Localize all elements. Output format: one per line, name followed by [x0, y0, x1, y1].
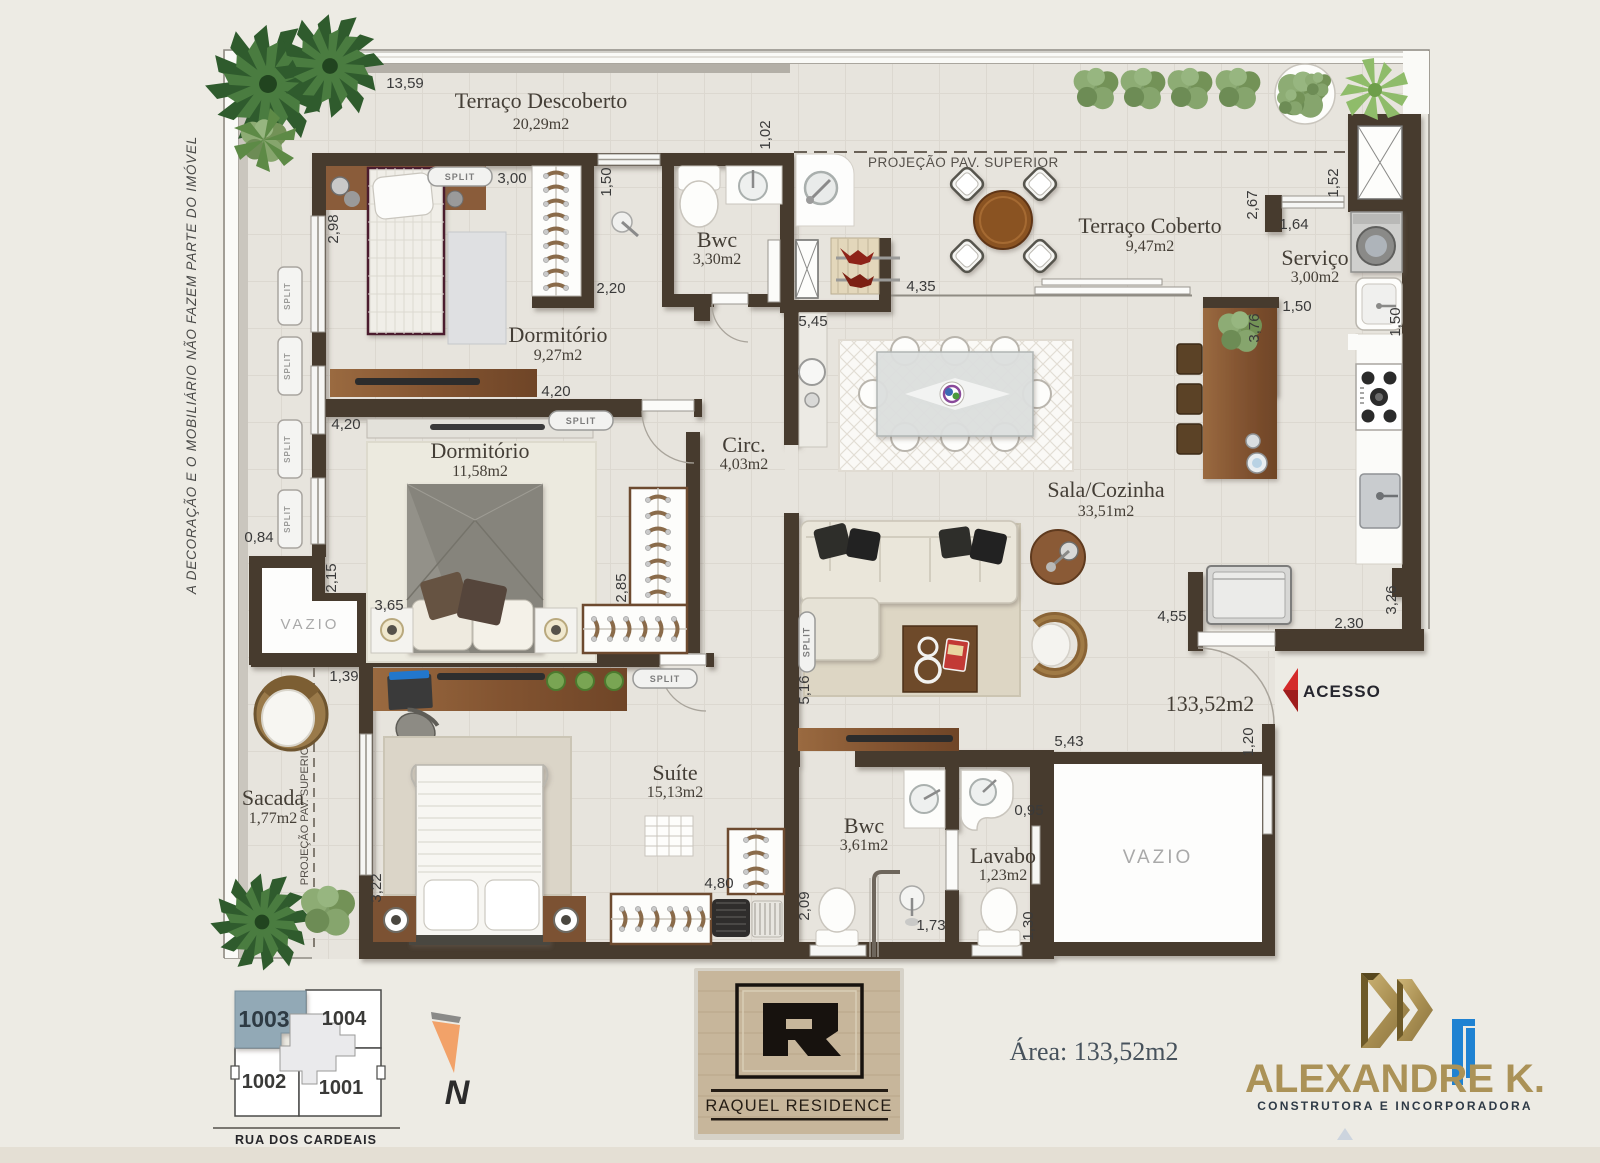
- svg-text:3,61m2: 3,61m2: [840, 837, 888, 854]
- svg-text:2,09: 2,09: [796, 891, 813, 920]
- svg-text:133,52m2: 133,52m2: [1166, 691, 1255, 716]
- svg-text:15,13m2: 15,13m2: [647, 784, 703, 801]
- svg-text:9,27m2: 9,27m2: [534, 347, 582, 364]
- svg-text:Bwc: Bwc: [697, 227, 738, 252]
- svg-text:1,50: 1,50: [1282, 298, 1311, 315]
- svg-text:PROJEÇÃO PAV. SUPERIOR: PROJEÇÃO PAV. SUPERIOR: [298, 739, 311, 886]
- svg-text:Lavabo: Lavabo: [970, 843, 1036, 868]
- svg-text:3,65: 3,65: [374, 597, 403, 614]
- svg-text:1,52: 1,52: [1325, 168, 1342, 197]
- svg-text:0,84: 0,84: [244, 529, 273, 546]
- svg-text:2,30: 2,30: [1334, 615, 1363, 632]
- svg-text:1,50: 1,50: [1387, 307, 1404, 336]
- svg-text:3,30m2: 3,30m2: [693, 251, 741, 268]
- svg-text:Suíte: Suíte: [652, 760, 697, 785]
- svg-text:1,73: 1,73: [916, 917, 945, 934]
- svg-text:1003: 1003: [238, 1006, 289, 1032]
- svg-text:ACESSO: ACESSO: [1303, 682, 1381, 701]
- svg-text:Sacada: Sacada: [242, 785, 305, 810]
- svg-text:5,16: 5,16: [796, 675, 813, 704]
- svg-text:Área: 133,52m2: Área: 133,52m2: [1010, 1037, 1179, 1066]
- svg-text:3,26: 3,26: [1383, 585, 1400, 614]
- svg-text:1,64: 1,64: [1279, 216, 1308, 233]
- svg-text:SPLIT: SPLIT: [283, 435, 292, 463]
- svg-text:2,67: 2,67: [1244, 190, 1261, 219]
- svg-text:VAZIO: VAZIO: [1123, 847, 1194, 868]
- svg-text:4,20: 4,20: [541, 383, 570, 400]
- svg-text:Sala/Cozinha: Sala/Cozinha: [1047, 477, 1165, 502]
- svg-text:2,15: 2,15: [323, 563, 340, 592]
- svg-text:1,30: 1,30: [1020, 911, 1037, 940]
- svg-text:20,29m2: 20,29m2: [513, 116, 569, 133]
- svg-text:Terraço Coberto: Terraço Coberto: [1078, 213, 1221, 238]
- svg-text:1,23m2: 1,23m2: [979, 867, 1027, 884]
- svg-text:A DECORAÇÃO E O MOBILIÁRIO NÃ: A DECORAÇÃO E O MOBILIÁRIO NÃO FAZEM PAR…: [184, 136, 199, 595]
- svg-text:4,55: 4,55: [1157, 608, 1186, 625]
- svg-text:1004: 1004: [322, 1008, 367, 1030]
- svg-text:N: N: [445, 1074, 471, 1112]
- svg-text:1,20: 1,20: [1240, 727, 1257, 756]
- svg-text:3,22: 3,22: [368, 873, 385, 902]
- svg-text:CONSTRUTORA E INCORPORADORA: CONSTRUTORA E INCORPORADORA: [1257, 1099, 1532, 1113]
- svg-text:Dormitório: Dormitório: [431, 438, 530, 463]
- svg-text:SPLIT: SPLIT: [283, 505, 292, 533]
- svg-text:2,98: 2,98: [325, 214, 342, 243]
- svg-text:1001: 1001: [319, 1077, 364, 1099]
- svg-text:2,85: 2,85: [613, 573, 630, 602]
- svg-text:9,47m2: 9,47m2: [1126, 238, 1174, 255]
- svg-text:5,45: 5,45: [798, 313, 827, 330]
- svg-text:VAZIO: VAZIO: [281, 616, 340, 633]
- svg-text:1,77m2: 1,77m2: [249, 810, 297, 827]
- svg-text:0,95: 0,95: [1014, 802, 1043, 819]
- svg-text:2,20: 2,20: [596, 280, 625, 297]
- svg-text:33,51m2: 33,51m2: [1078, 503, 1134, 520]
- svg-text:Dormitório: Dormitório: [509, 322, 608, 347]
- svg-text:4,03m2: 4,03m2: [720, 456, 768, 473]
- svg-text:1002: 1002: [242, 1071, 287, 1093]
- svg-text:11,58m2: 11,58m2: [452, 463, 508, 480]
- svg-text:Serviço: Serviço: [1281, 245, 1348, 270]
- svg-text:13,59: 13,59: [386, 75, 424, 92]
- svg-text:1,02: 1,02: [757, 120, 774, 149]
- svg-text:5,43: 5,43: [1054, 733, 1083, 750]
- svg-text:ALEXANDRE K.: ALEXANDRE K.: [1245, 1057, 1545, 1101]
- svg-text:1,50: 1,50: [598, 167, 615, 196]
- svg-text:4,20: 4,20: [331, 416, 360, 433]
- svg-text:RUA DOS CARDEAIS: RUA DOS CARDEAIS: [235, 1133, 377, 1147]
- svg-text:3,00m2: 3,00m2: [1291, 269, 1339, 286]
- svg-text:RAQUEL RESIDENCE: RAQUEL RESIDENCE: [705, 1097, 892, 1115]
- svg-text:Bwc: Bwc: [844, 813, 885, 838]
- svg-text:Circ.: Circ.: [722, 432, 765, 457]
- svg-text:4,35: 4,35: [906, 278, 935, 295]
- svg-text:Terraço Descoberto: Terraço Descoberto: [455, 88, 628, 113]
- svg-text:4,80: 4,80: [704, 875, 733, 892]
- svg-text:PROJEÇÃO PAV. SUPERIOR: PROJEÇÃO PAV. SUPERIOR: [868, 155, 1059, 170]
- svg-text:3,76: 3,76: [1246, 313, 1263, 342]
- svg-text:1,39: 1,39: [329, 668, 358, 685]
- svg-text:3,00: 3,00: [497, 170, 526, 187]
- svg-text:SPLIT: SPLIT: [283, 282, 292, 310]
- svg-text:SPLIT: SPLIT: [283, 352, 292, 380]
